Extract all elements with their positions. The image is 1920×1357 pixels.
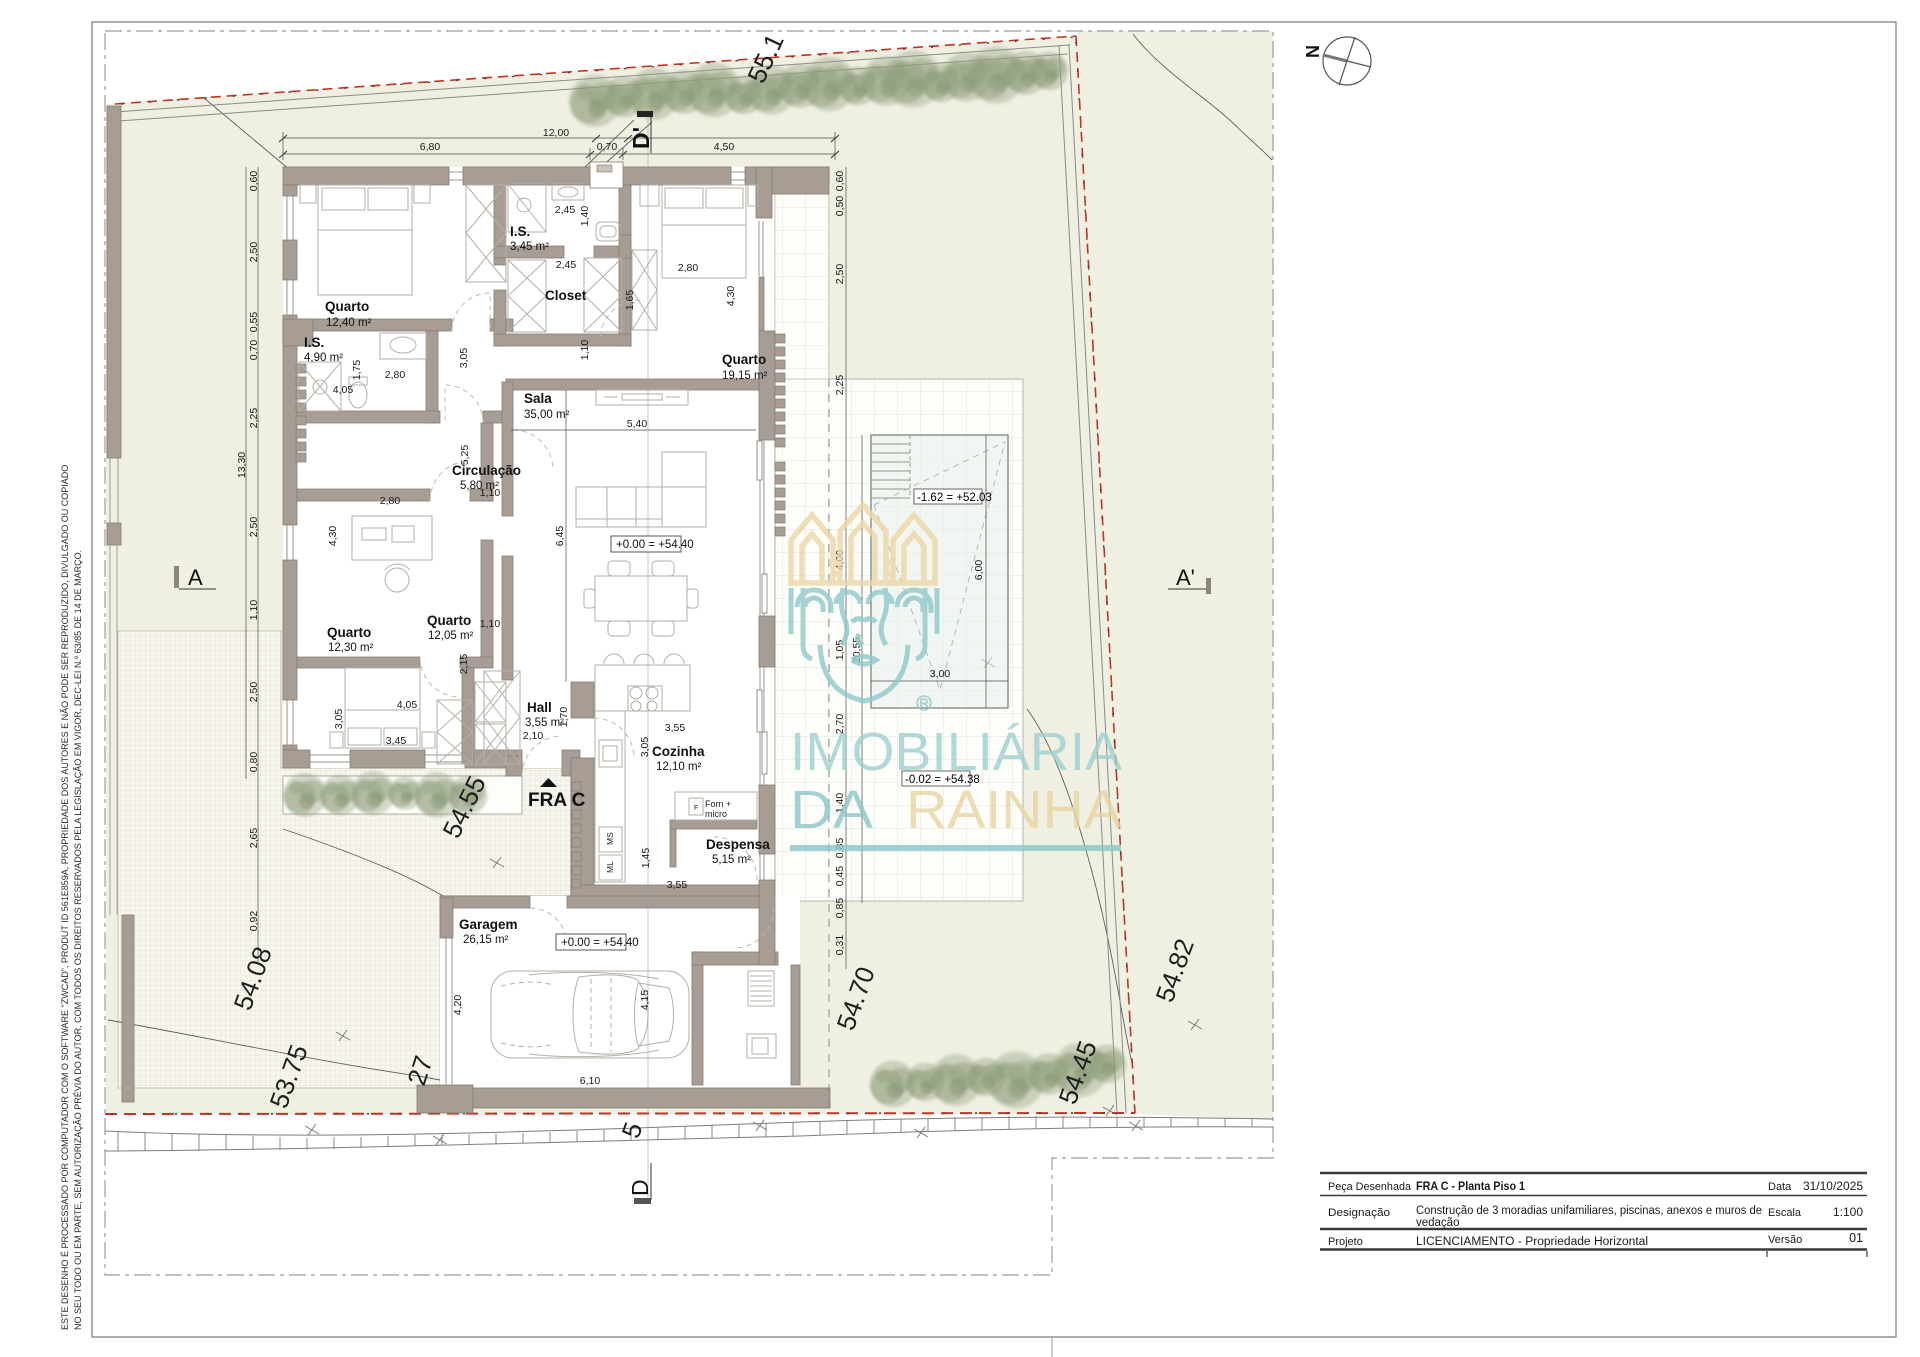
svg-text:2,50: 2,50 [248, 517, 260, 538]
svg-text:Quarto: Quarto [325, 299, 369, 314]
svg-text:vedação: vedação [1416, 1217, 1459, 1229]
svg-text:Circulação: Circulação [452, 463, 521, 478]
svg-text:1,65: 1,65 [624, 290, 636, 311]
svg-text:31/10/2025: 31/10/2025 [1803, 1179, 1863, 1193]
svg-text:6,80: 6,80 [420, 141, 441, 153]
svg-text:35,00 m²: 35,00 m² [524, 409, 570, 421]
svg-text:1,40: 1,40 [579, 206, 591, 227]
svg-text:4,90 m²: 4,90 m² [304, 352, 343, 364]
svg-text:3,45 m²: 3,45 m² [510, 241, 549, 253]
svg-text:2,50: 2,50 [834, 264, 846, 285]
svg-text:LICENCIAMENTO - Propriedade Ho: LICENCIAMENTO - Propriedade Horizontal [1416, 1236, 1648, 1248]
svg-text:3,45: 3,45 [386, 735, 407, 747]
svg-text:0,70: 0,70 [597, 141, 618, 153]
svg-text:FRA C - Planta Piso 1: FRA C - Planta Piso 1 [1416, 1179, 1525, 1193]
svg-text:N: N [1303, 45, 1323, 58]
svg-text:2,15: 2,15 [458, 654, 470, 675]
svg-text:12,30 m²: 12,30 m² [328, 642, 374, 654]
svg-text:19,15 m²: 19,15 m² [722, 370, 768, 382]
svg-text:2,50: 2,50 [248, 682, 260, 703]
svg-text:Data: Data [1768, 1181, 1792, 1193]
svg-text:DA: DA [790, 780, 873, 840]
svg-text:4,15: 4,15 [639, 990, 651, 1011]
svg-text:0,85: 0,85 [834, 898, 846, 919]
svg-text:+0.00 = +54.40: +0.00 = +54.40 [561, 937, 639, 949]
svg-text:Versão: Versão [1768, 1234, 1802, 1246]
svg-text:2,10: 2,10 [523, 730, 544, 742]
svg-text:2,80: 2,80 [380, 495, 401, 507]
svg-text:Closet: Closet [545, 288, 587, 303]
svg-text:F: F [694, 805, 698, 812]
svg-text:3,55 m²: 3,55 m² [525, 717, 564, 729]
svg-text:1,10: 1,10 [480, 618, 501, 630]
svg-text:3,05: 3,05 [333, 709, 345, 730]
svg-text:+0.00 = +54.40: +0.00 = +54.40 [616, 539, 694, 551]
svg-text:NO SEU TODO OU EM PARTE, SEM A: NO SEU TODO OU EM PARTE, SEM AUTORIZAÇÃO… [73, 550, 83, 1330]
svg-text:4,05: 4,05 [333, 384, 354, 396]
svg-text:0,50: 0,50 [834, 196, 846, 217]
svg-text:2,50: 2,50 [248, 242, 260, 263]
svg-text:0,60: 0,60 [834, 171, 846, 192]
svg-text:ESTE DESENHO É PROCESSADO POR: ESTE DESENHO É PROCESSADO POR COMPUTADOR… [60, 465, 70, 1330]
svg-text:D': D' [628, 127, 654, 149]
svg-text:IMOBILIÁRIA: IMOBILIÁRIA [790, 722, 1122, 782]
svg-text:1,75: 1,75 [351, 360, 363, 381]
svg-text:3,55: 3,55 [665, 722, 686, 734]
svg-text:2,45: 2,45 [555, 204, 576, 216]
svg-text:3,00: 3,00 [930, 668, 951, 680]
svg-text:Projeto: Projeto [1328, 1236, 1363, 1248]
svg-text:D: D [627, 1179, 653, 1196]
svg-text:5,80 m²: 5,80 m² [460, 480, 499, 492]
svg-text:-1.62 = +52.03: -1.62 = +52.03 [917, 492, 992, 504]
svg-text:micro: micro [705, 809, 727, 819]
svg-text:1,45: 1,45 [640, 848, 652, 869]
svg-text:Garagem: Garagem [459, 917, 518, 932]
svg-text:0,31: 0,31 [834, 935, 846, 956]
svg-text:A: A [188, 565, 203, 590]
svg-text:0,70: 0,70 [248, 340, 260, 361]
svg-text:12,40 m²: 12,40 m² [326, 317, 372, 329]
svg-text:3,05: 3,05 [458, 348, 470, 369]
svg-text:2,80: 2,80 [678, 262, 699, 274]
svg-text:12,00: 12,00 [543, 127, 569, 139]
svg-text:Quarto: Quarto [327, 625, 371, 640]
svg-text:Designação: Designação [1328, 1207, 1390, 1219]
svg-text:2,45: 2,45 [556, 259, 577, 271]
svg-text:6,45: 6,45 [554, 526, 566, 547]
svg-text:4,30: 4,30 [725, 286, 737, 307]
svg-text:13,30: 13,30 [236, 452, 248, 478]
svg-text:2,25: 2,25 [834, 375, 846, 396]
svg-text:3,05: 3,05 [639, 737, 651, 758]
svg-text:Construção de 3 moradias unifa: Construção de 3 moradias unifamiliares, … [1416, 1205, 1762, 1217]
svg-text:Cozinha: Cozinha [652, 744, 705, 759]
svg-text:MS: MS [605, 832, 615, 845]
svg-text:4,50: 4,50 [714, 141, 735, 153]
svg-text:2,80: 2,80 [385, 369, 406, 381]
svg-text:5,15 m²: 5,15 m² [712, 854, 751, 866]
svg-text:Hall: Hall [527, 700, 552, 715]
svg-text:Quarto: Quarto [722, 352, 766, 367]
svg-text:6,00: 6,00 [973, 560, 985, 581]
svg-text:Sala: Sala [524, 391, 552, 406]
svg-text:ML: ML [605, 861, 615, 873]
svg-text:4,05: 4,05 [397, 699, 418, 711]
svg-text:2,65: 2,65 [248, 828, 260, 849]
svg-text:I.S.: I.S. [304, 335, 324, 350]
svg-text:RAINHA: RAINHA [906, 780, 1122, 840]
svg-text:26,15 m²: 26,15 m² [463, 934, 509, 946]
svg-text:3,55: 3,55 [667, 879, 688, 891]
svg-text:0,60: 0,60 [248, 171, 260, 192]
svg-text:12,05 m²: 12,05 m² [428, 630, 474, 642]
svg-text:0,45: 0,45 [834, 866, 846, 887]
svg-text:4,20: 4,20 [452, 995, 464, 1016]
svg-text:01: 01 [1849, 1231, 1863, 1245]
svg-text:0,55: 0,55 [248, 312, 260, 333]
svg-text:1,10: 1,10 [579, 340, 591, 361]
svg-text:12,10 m²: 12,10 m² [656, 761, 702, 773]
svg-text:Peça Desenhada: Peça Desenhada [1328, 1181, 1412, 1193]
svg-text:Quarto: Quarto [427, 613, 471, 628]
svg-text:5,40: 5,40 [627, 418, 648, 430]
svg-text:I.S.: I.S. [510, 224, 530, 239]
svg-text:6,10: 6,10 [580, 1075, 601, 1087]
svg-text:1,10: 1,10 [248, 600, 260, 621]
svg-text:2,25: 2,25 [248, 408, 260, 429]
svg-text:Forn +: Forn + [705, 799, 731, 809]
svg-text:Escala: Escala [1768, 1207, 1802, 1219]
svg-text:FRA C: FRA C [528, 790, 586, 811]
svg-text:Despensa: Despensa [706, 837, 770, 852]
svg-text:4,30: 4,30 [327, 526, 339, 547]
svg-text:A': A' [1176, 565, 1195, 590]
svg-text:0,92: 0,92 [248, 911, 260, 932]
svg-text:0,80: 0,80 [248, 752, 260, 773]
svg-text:1:100: 1:100 [1833, 1205, 1863, 1219]
